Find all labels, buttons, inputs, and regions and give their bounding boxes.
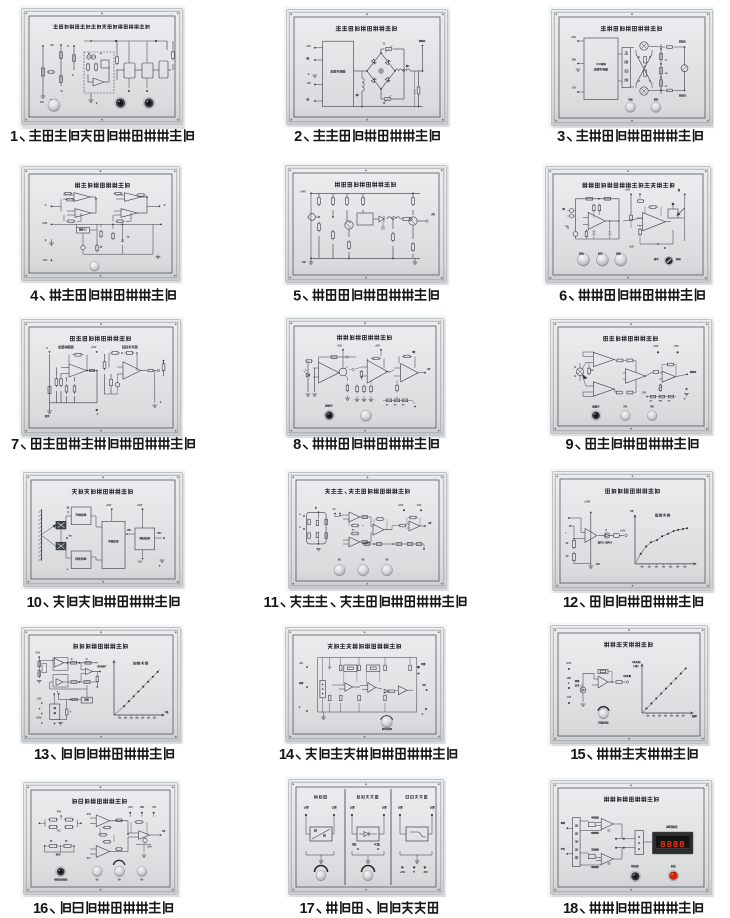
svg-text:V: V	[677, 344, 679, 348]
svg-text:2: 2	[570, 595, 578, 611]
svg-text:V: V	[430, 806, 433, 810]
svg-text:5: 5	[578, 747, 586, 763]
svg-text:V: V	[428, 521, 430, 525]
svg-text:V: V	[141, 503, 143, 507]
svg-text:+: +	[565, 531, 567, 535]
svg-text:V: V	[304, 189, 306, 193]
svg-text:V: V	[40, 697, 42, 701]
svg-text:4: 4	[286, 747, 295, 763]
svg-text:3: 3	[41, 747, 49, 763]
svg-text:V: V	[382, 806, 385, 810]
svg-text:C: C	[59, 830, 61, 833]
svg-text:D: D	[591, 866, 593, 869]
svg-text:V: V	[110, 503, 112, 507]
svg-text:q: q	[46, 345, 48, 349]
svg-text:0: 0	[34, 595, 42, 611]
svg-text:8: 8	[293, 437, 301, 453]
svg-text:6: 6	[559, 288, 567, 304]
svg-text:V: V	[623, 674, 625, 678]
svg-text:B: B	[591, 832, 593, 835]
svg-text:V: V	[46, 221, 48, 225]
svg-text:7: 7	[11, 437, 19, 453]
svg-text:V: V	[40, 716, 42, 720]
svg-text:A: A	[45, 203, 47, 207]
svg-text:V: V	[402, 503, 404, 507]
svg-text:D: D	[142, 806, 144, 809]
svg-text:V: V	[304, 806, 307, 810]
svg-text:4: 4	[30, 288, 39, 304]
svg-text:B: B	[59, 811, 61, 814]
svg-text:A: A	[591, 817, 593, 820]
svg-text:8: 8	[570, 901, 578, 917]
svg-text:5: 5	[293, 288, 301, 304]
svg-text:C: C	[89, 857, 91, 860]
svg-text:V: V	[141, 560, 143, 564]
svg-text:V: V	[332, 806, 335, 810]
svg-text:V: V	[46, 258, 48, 262]
svg-text:C: C	[591, 849, 593, 852]
svg-text:R: R	[412, 351, 414, 354]
svg-text:V: V	[624, 529, 626, 533]
svg-text:1: 1	[10, 129, 18, 145]
svg-text:V: V	[105, 664, 107, 668]
svg-text:3: 3	[557, 129, 565, 145]
svg-text:D: D	[304, 260, 306, 264]
svg-text:V: V	[570, 661, 572, 665]
svg-text:B: B	[164, 203, 166, 207]
svg-text:R: R	[71, 658, 73, 661]
svg-text:V: V	[420, 503, 422, 507]
svg-text:R: R	[165, 710, 167, 714]
svg-text:V: V	[95, 345, 97, 349]
svg-text:V: V	[398, 806, 401, 810]
svg-text:2: 2	[294, 129, 302, 145]
svg-text:B: B	[59, 853, 61, 856]
svg-text:V: V	[570, 695, 572, 699]
svg-text:7: 7	[307, 901, 315, 917]
svg-text:V: V	[630, 509, 632, 513]
svg-text:D: D	[598, 562, 600, 566]
svg-text:B: B	[89, 813, 91, 816]
svg-text:V: V	[426, 870, 428, 874]
svg-text:R: R	[86, 658, 88, 661]
svg-text:1: 1	[271, 595, 279, 611]
svg-text:V: V	[39, 651, 41, 655]
svg-text:V: V	[403, 870, 405, 874]
svg-text:6: 6	[40, 901, 48, 917]
svg-text:D: D	[569, 676, 571, 680]
svg-text:D: D	[574, 59, 576, 62]
svg-text:R: R	[72, 74, 74, 77]
svg-text:9: 9	[566, 437, 574, 453]
svg-text:V: V	[657, 344, 659, 348]
svg-text:V: V	[301, 661, 303, 665]
svg-text:V: V	[632, 660, 634, 664]
svg-text:V: V	[350, 806, 353, 810]
